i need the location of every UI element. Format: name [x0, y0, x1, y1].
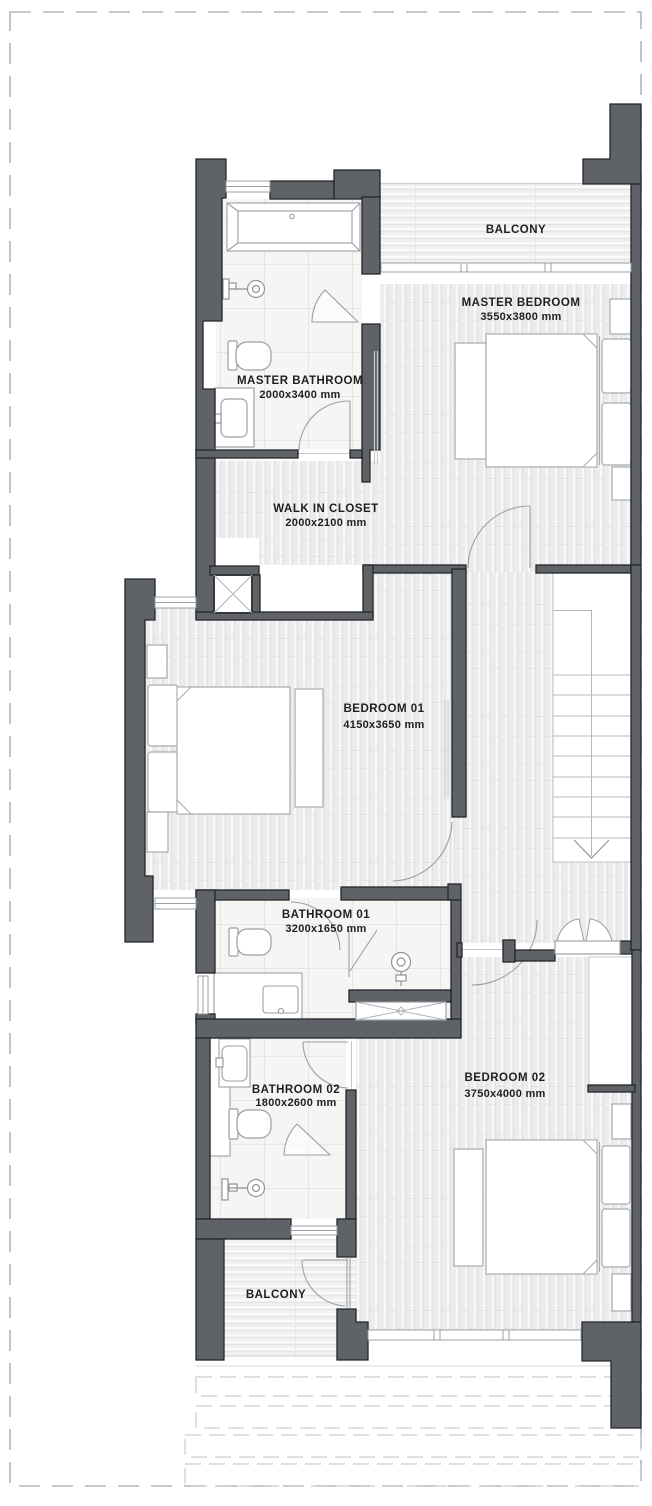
svg-text:MASTER BATHROOM: MASTER BATHROOM — [237, 375, 363, 387]
svg-text:BALCONY: BALCONY — [246, 1289, 306, 1301]
svg-text:MASTER BEDROOM: MASTER BEDROOM — [462, 297, 581, 309]
svg-text:BEDROOM 01: BEDROOM 01 — [343, 703, 424, 715]
svg-text:BATHROOM 01: BATHROOM 01 — [282, 909, 370, 921]
svg-text:4150x3650 mm: 4150x3650 mm — [343, 719, 424, 731]
svg-text:WALK IN CLOSET: WALK IN CLOSET — [273, 503, 378, 515]
svg-text:BEDROOM 02: BEDROOM 02 — [464, 1072, 545, 1084]
svg-text:BALCONY: BALCONY — [486, 224, 546, 236]
svg-text:3200x1650 mm: 3200x1650 mm — [285, 923, 366, 935]
svg-text:3550x3800 mm: 3550x3800 mm — [480, 311, 561, 323]
svg-text:BATHROOM 02: BATHROOM 02 — [252, 1084, 340, 1096]
svg-text:3750x4000 mm: 3750x4000 mm — [464, 1088, 545, 1100]
svg-text:2000x3400 mm: 2000x3400 mm — [259, 389, 340, 401]
svg-text:1800x2600 mm: 1800x2600 mm — [255, 1097, 336, 1109]
svg-text:2000x2100 mm: 2000x2100 mm — [285, 517, 366, 529]
